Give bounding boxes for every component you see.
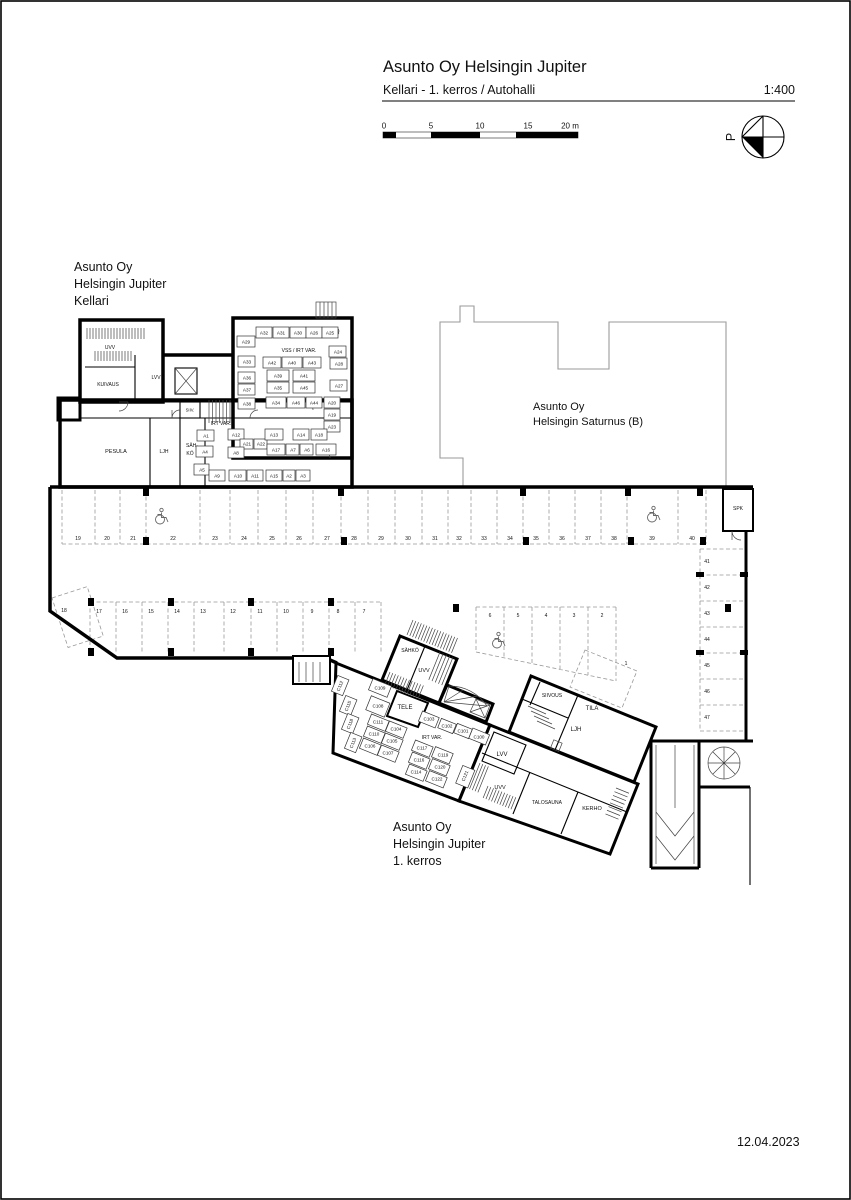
storage-unit-label: A20 (328, 401, 337, 406)
stall-number: 39 (649, 536, 655, 542)
room-label: VSS / IRT VAR. (282, 348, 317, 354)
stall-number: 42 (704, 585, 710, 591)
kellari-nw-block (80, 320, 163, 402)
stall-number: 22 (170, 536, 176, 542)
stall-number: 12 (230, 609, 236, 615)
room-label: SPK (733, 506, 744, 512)
saturnus-label-line2: Helsingin Saturnus (B) (533, 416, 643, 428)
storage-unit-label: C107 (383, 751, 394, 756)
storage-unit-label: A2 (286, 474, 292, 479)
storage-unit-label: A23 (328, 425, 337, 430)
north-label: P (724, 133, 738, 141)
stall-number: 20 (104, 536, 110, 542)
label-line: Asunto Oy (74, 260, 133, 274)
storage-unit-label: A22 (257, 442, 266, 447)
storage-unit-label: A7 (290, 448, 296, 453)
storage-unit-label: A36 (243, 376, 252, 381)
storage-unit-label: A4 (202, 450, 208, 455)
scale-tick-15: 15 (524, 122, 533, 131)
kerros1-plan: C109 C108 C112 C115 C118 C113 C111 C104 … (331, 620, 656, 854)
exterior-stair (293, 656, 330, 684)
room-label: IRT VAR. (211, 421, 232, 427)
stall-number: 27 (324, 536, 330, 542)
storage-unit-label: A25 (326, 331, 335, 336)
stall-number: 47 (704, 715, 710, 721)
room-label: SIIV. (186, 408, 195, 413)
storage-unit-label: C117 (417, 746, 428, 751)
storage-unit-label: A14 (297, 433, 306, 438)
storage-unit-label: A43 (308, 361, 317, 366)
room-label: LVV (151, 375, 161, 381)
storage-unit-label: A17 (272, 448, 281, 453)
stall-number: 24 (241, 536, 247, 542)
stall-number: 29 (378, 536, 384, 542)
label-line: Helsingin Jupiter (74, 277, 166, 291)
stall-number: 33 (481, 536, 487, 542)
date-label: 12.04.2023 (737, 1135, 800, 1149)
storage-unit-label: A35 (274, 386, 283, 391)
north-arrow-icon: P (724, 116, 784, 158)
storage-unit-label: C105 (387, 739, 398, 744)
storage-unit-label: C104 (391, 727, 402, 732)
storage-unit-label: C106 (365, 744, 376, 749)
storage-unit-label: C109 (375, 686, 386, 691)
exterior-stair (316, 302, 336, 318)
room-label: TILA (586, 706, 599, 712)
storage-unit-label: C111 (373, 720, 384, 725)
room-label: TELE (397, 705, 412, 711)
storage-unit-label: A30 (294, 331, 303, 336)
kerros1-title-label: Asunto Oy Helsingin Jupiter 1. kerros (393, 820, 485, 868)
storage-unit-label: A9 (214, 474, 220, 479)
stall-number: 46 (704, 689, 710, 695)
stall-number: 41 (704, 559, 710, 565)
room-label: UVV (105, 345, 116, 351)
room-label: IRT VAR. (422, 735, 443, 741)
stall-number: 9 (311, 609, 314, 615)
stall-number: 28 (351, 536, 357, 542)
stall-number: 13 (200, 609, 206, 615)
storage-unit-label: A11 (251, 474, 259, 479)
wheelchair-icon (493, 632, 506, 648)
room-label: SÄHKÖ (401, 647, 419, 654)
stall-number: 7 (363, 609, 366, 615)
storage-unit-label: A10 (234, 474, 243, 479)
room-label: PESULA (105, 449, 127, 455)
label-line: Asunto Oy (393, 820, 452, 834)
room-label: TALOSAUNA (532, 800, 563, 806)
stall-number: 14 (174, 609, 180, 615)
stall-number: 43 (704, 611, 710, 617)
storage-unit-label: A13 (270, 433, 279, 438)
storage-unit-label: A42 (268, 361, 277, 366)
scale-tick-10: 10 (476, 122, 485, 131)
storage-unit-label: C116 (414, 758, 425, 763)
page-border (1, 1, 850, 1199)
stall-number: 10 (283, 609, 289, 615)
parking-row-middle-dividers (52, 587, 381, 654)
stall-number: 36 (559, 536, 565, 542)
storage-unit-label: A33 (243, 360, 252, 365)
stall-number: 15 (148, 609, 154, 615)
room-label: SÄH- (186, 442, 198, 449)
stall-number: 17 (96, 609, 102, 615)
scale-bar: 0 5 10 15 20 m (382, 122, 579, 139)
label-line: Helsingin Jupiter (393, 837, 485, 851)
title-block: Asunto Oy Helsingin Jupiter Kellari - 1.… (382, 58, 795, 101)
storage-unit-label: A24 (334, 350, 343, 355)
stall-number: 31 (432, 536, 438, 542)
storage-unit-label: A44 (310, 401, 319, 406)
storage-unit-label: A5 (199, 468, 205, 473)
storage-unit-label: A37 (243, 388, 252, 393)
storage-unit-label: A32 (260, 331, 269, 336)
room-label: SIIVOUS (542, 693, 563, 699)
room-label: LJH (571, 727, 582, 733)
stall-number: 44 (704, 637, 710, 643)
storage-unit-label: A38 (243, 402, 252, 407)
storage-unit-label: C122 (432, 777, 443, 782)
room-label: LVV (497, 752, 508, 758)
scale-tick-0: 0 (382, 122, 387, 131)
storage-unit-label: A39 (274, 374, 283, 379)
storage-unit-label: A31 (277, 331, 286, 336)
storage-unit-label: A12 (232, 433, 241, 438)
stall-number: 11 (257, 609, 262, 615)
wheelchair-icon (156, 508, 169, 524)
kellari-plan: A29 A32 A31 A30 A26 A25 A24 A33 A36 A37 … (58, 302, 352, 487)
storage-unit-label: A8 (233, 451, 239, 456)
stall-number: 21 (130, 536, 136, 542)
storage-unit-label: A1 (203, 434, 209, 439)
storage-unit-label: A28 (335, 362, 344, 367)
stall-number: 34 (507, 536, 513, 542)
storage-unit-label: C103 (424, 717, 435, 722)
stall-number: 1 (625, 661, 628, 667)
page-title: Asunto Oy Helsingin Jupiter (383, 58, 587, 76)
storage-unit-label: A27 (335, 384, 344, 389)
room-label: UVV (494, 785, 506, 791)
kellari-title-label: Asunto Oy Helsingin Jupiter Kellari (74, 260, 166, 308)
storage-unit-label: C120 (435, 765, 446, 770)
stall-number: 40 (689, 536, 695, 542)
label-line: 1. kerros (393, 854, 442, 868)
room-label: KERHO (582, 806, 602, 812)
saturnus-label-line1: Asunto Oy (533, 401, 585, 413)
storage-unit-label: A6 (304, 448, 310, 453)
room-label: KUIVAUS (97, 382, 119, 388)
stall-number: 5 (517, 613, 520, 619)
stall-number: 4 (545, 613, 548, 619)
floor-plan-sheet: Asunto Oy Helsingin Jupiter Kellari - 1.… (0, 0, 851, 1200)
stall-number: 19 (75, 536, 81, 542)
stall-number: 38 (611, 536, 617, 542)
storage-unit-label: A3 (300, 474, 306, 479)
drawing-scale: 1:400 (764, 83, 795, 97)
storage-unit-label: C102 (442, 724, 453, 729)
stall-number: 18 (61, 608, 67, 614)
structural-columns (88, 487, 748, 656)
room-label: UVV (418, 668, 430, 674)
stall-number: 16 (122, 609, 128, 615)
room-label: KÖ (186, 450, 193, 457)
storage-unit-label: A40 (288, 361, 297, 366)
floor-plan-drawing: Asunto Oy Helsingin Jupiter Kellari - 1.… (0, 0, 851, 1200)
storage-unit-label: A26 (310, 331, 319, 336)
storage-unit-label: A15 (270, 474, 279, 479)
storage-unit-label: A34 (272, 401, 281, 406)
storage-unit-label: A41 (300, 374, 309, 379)
storage-unit-label: A29 (242, 340, 251, 345)
parking-row-top-dividers (62, 490, 706, 544)
storage-unit-label: A16 (322, 448, 331, 453)
storage-unit-label: C108 (373, 704, 384, 709)
stall-number: 32 (456, 536, 462, 542)
stall-number: 45 (704, 663, 710, 669)
stall-number: 37 (585, 536, 591, 542)
storage-unit-label: A18 (315, 433, 324, 438)
storage-unit-label: C114 (411, 770, 422, 775)
storage-unit-label: A45 (300, 386, 309, 391)
storage-unit-label: C119 (438, 753, 449, 758)
label-line: Kellari (74, 294, 109, 308)
scale-tick-20: 20 m (561, 122, 579, 131)
spk-room: SPK (723, 489, 753, 540)
storage-unit-label: A46 (292, 401, 301, 406)
stall-number: 6 (489, 613, 492, 619)
storage-unit-label: A21 (243, 442, 252, 447)
room-label: LJH (160, 449, 169, 455)
stall-number: 26 (296, 536, 302, 542)
storage-unit-label: C110 (369, 732, 380, 737)
storage-unit-label: A19 (328, 413, 337, 418)
stall-number: 8 (337, 609, 340, 615)
scale-tick-5: 5 (429, 122, 434, 131)
stall-number: 30 (405, 536, 411, 542)
storage-unit-label: C101 (458, 729, 469, 734)
stall-number: 25 (269, 536, 275, 542)
stall-number: 35 (533, 536, 539, 542)
saturnus-building-outline: Asunto Oy Helsingin Saturnus (B) (440, 306, 726, 487)
page-subtitle: Kellari - 1. kerros / Autohalli (383, 83, 535, 97)
stall-number: 23 (212, 536, 218, 542)
wheelchair-icon (648, 506, 661, 522)
stall-number: 2 (601, 613, 604, 619)
stall-number: 3 (573, 613, 576, 619)
spiral-stair-icon (708, 747, 740, 779)
storage-unit-label: C100 (474, 735, 485, 740)
